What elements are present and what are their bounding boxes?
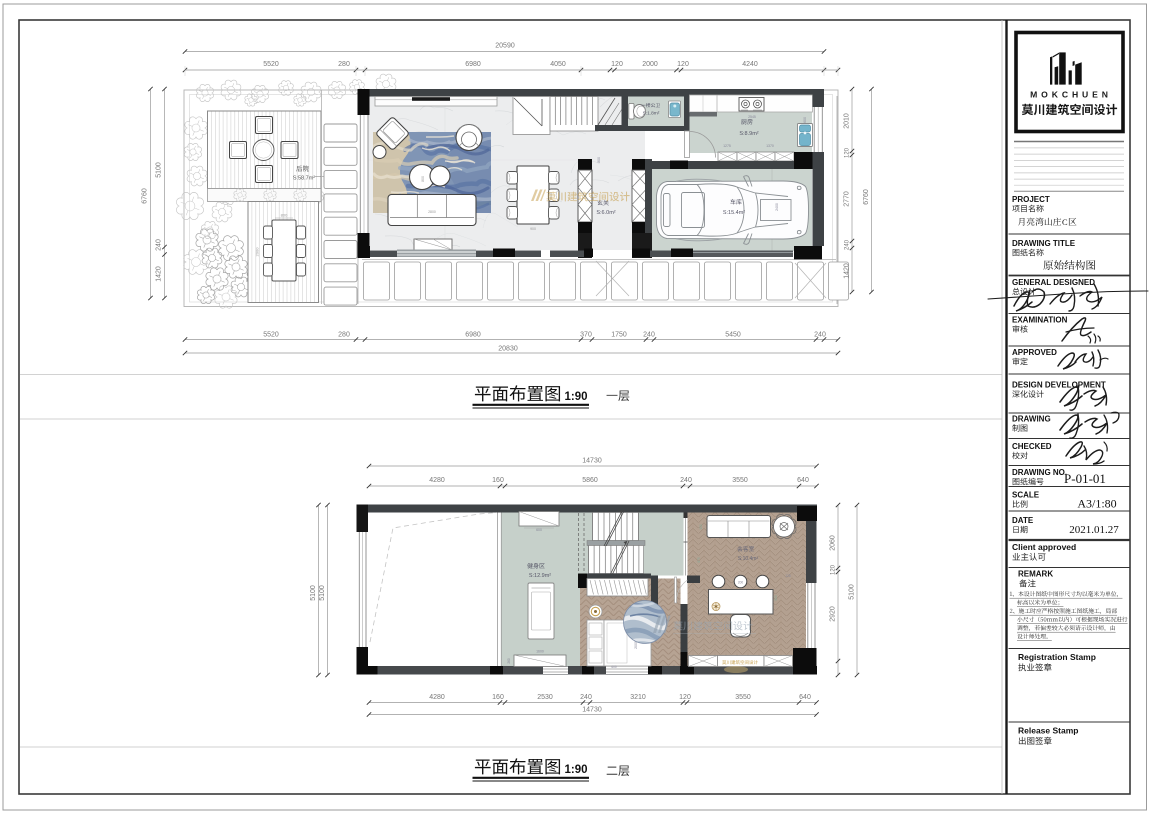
svg-text:P-01-01: P-01-01 — [1064, 471, 1106, 486]
svg-text:5100: 5100 — [156, 162, 163, 178]
svg-text:5520: 5520 — [263, 332, 279, 339]
svg-text:125: 125 — [785, 574, 791, 578]
svg-text:EXAMINATION: EXAMINATION — [1012, 316, 1068, 325]
svg-text:240: 240 — [814, 332, 826, 339]
svg-text:A3/1:80: A3/1:80 — [1077, 497, 1116, 511]
svg-text:DATE: DATE — [1012, 516, 1034, 525]
svg-text:800: 800 — [597, 157, 601, 163]
svg-text:1420: 1420 — [156, 266, 163, 282]
svg-text:REMARK: REMARK — [1018, 570, 1053, 579]
svg-text:4240: 4240 — [742, 61, 758, 68]
svg-text:800: 800 — [281, 213, 288, 218]
svg-text:240: 240 — [845, 239, 851, 250]
svg-text:6760: 6760 — [142, 188, 149, 204]
svg-text:240: 240 — [680, 477, 692, 484]
svg-text:S:15.4m²: S:15.4m² — [723, 210, 745, 216]
svg-text:20830: 20830 — [498, 346, 518, 353]
svg-text:DRAWING: DRAWING — [1012, 415, 1051, 424]
svg-text:DESIGN DEVELOPMENT: DESIGN DEVELOPMENT — [1012, 381, 1106, 390]
svg-text:160: 160 — [492, 477, 504, 484]
svg-text:6760: 6760 — [863, 189, 870, 205]
svg-text:2770: 2770 — [844, 191, 851, 207]
svg-text:2545: 2545 — [748, 115, 756, 119]
svg-text:2920: 2920 — [830, 606, 837, 622]
svg-text:2800: 2800 — [428, 210, 436, 214]
svg-text:1275: 1275 — [723, 144, 731, 148]
svg-text:875: 875 — [697, 557, 701, 563]
svg-text:120: 120 — [845, 147, 851, 158]
svg-text:2021.01.27: 2021.01.27 — [1069, 524, 1119, 536]
svg-text:5450: 5450 — [725, 332, 741, 339]
svg-text:280: 280 — [338, 61, 350, 68]
svg-text:640: 640 — [797, 477, 809, 484]
svg-text:MOKCHUEN: MOKCHUEN — [1030, 90, 1112, 100]
svg-text:2000: 2000 — [255, 247, 260, 257]
svg-text:Registration Stamp: Registration Stamp — [1018, 652, 1096, 662]
svg-text:200: 200 — [738, 581, 744, 585]
svg-text:S:58.7m²: S:58.7m² — [293, 176, 315, 182]
svg-text:S:12.9m²: S:12.9m² — [529, 573, 551, 579]
svg-text:5100: 5100 — [310, 585, 317, 601]
svg-text:120: 120 — [611, 61, 623, 68]
svg-text:DRAWING NO.: DRAWING NO. — [1012, 468, 1067, 477]
svg-text:14730: 14730 — [582, 707, 602, 714]
svg-text:S:6.0m²: S:6.0m² — [596, 210, 615, 216]
svg-text:240: 240 — [643, 332, 655, 339]
svg-text:900: 900 — [530, 227, 536, 231]
svg-text:1600: 1600 — [536, 650, 544, 654]
svg-text:20590: 20590 — [495, 43, 515, 50]
svg-text:260: 260 — [507, 658, 511, 664]
svg-text:Release Stamp: Release Stamp — [1018, 726, 1078, 736]
svg-text:14730: 14730 — [582, 458, 602, 465]
svg-text:S:8.9m²: S:8.9m² — [739, 131, 758, 137]
svg-text:640: 640 — [799, 694, 811, 701]
svg-text:1420: 1420 — [844, 263, 851, 279]
svg-text:1750: 1750 — [611, 332, 627, 339]
svg-text:3550: 3550 — [735, 694, 751, 701]
svg-text:5100: 5100 — [849, 584, 856, 600]
svg-text:120: 120 — [677, 61, 689, 68]
svg-text:800: 800 — [421, 176, 425, 182]
svg-text:Client approved: Client approved — [1012, 542, 1076, 552]
svg-text:600: 600 — [803, 117, 807, 123]
svg-text:600: 600 — [611, 665, 617, 669]
svg-text:S:10.4m²: S:10.4m² — [738, 556, 759, 562]
svg-text:C: C — [1062, 218, 1068, 227]
svg-text:S:1.8m²: S:1.8m² — [643, 111, 660, 117]
svg-text:1370: 1370 — [766, 144, 774, 148]
svg-text:280: 280 — [338, 332, 350, 339]
svg-text:2060: 2060 — [830, 535, 837, 551]
svg-text:120: 120 — [831, 564, 837, 575]
svg-text:5860: 5860 — [582, 477, 598, 484]
svg-text:SCALE: SCALE — [1012, 491, 1040, 500]
svg-text:DRAWING TITLE: DRAWING TITLE — [1012, 239, 1076, 248]
svg-text:4280: 4280 — [429, 477, 445, 484]
svg-text:1:90: 1:90 — [564, 764, 587, 776]
svg-text:3210: 3210 — [630, 694, 646, 701]
svg-text:240: 240 — [156, 239, 163, 251]
svg-text:6980: 6980 — [465, 332, 481, 339]
svg-text:800: 800 — [774, 595, 778, 601]
svg-text:2400: 2400 — [775, 203, 779, 211]
svg-text:2530: 2530 — [537, 694, 553, 701]
svg-text:4280: 4280 — [429, 694, 445, 701]
svg-text:600: 600 — [536, 528, 542, 532]
svg-text:1:90: 1:90 — [564, 391, 587, 403]
svg-text:2010: 2010 — [844, 113, 851, 129]
svg-text:GENERAL DESIGNED: GENERAL DESIGNED — [1012, 278, 1095, 287]
svg-text:3550: 3550 — [732, 477, 748, 484]
svg-text:PROJECT: PROJECT — [1012, 195, 1050, 204]
svg-text:5100: 5100 — [319, 585, 326, 601]
svg-text:CHECKED: CHECKED — [1012, 442, 1052, 451]
svg-text:120: 120 — [679, 694, 691, 701]
svg-text:370: 370 — [580, 332, 592, 339]
svg-text:160: 160 — [492, 694, 504, 701]
svg-text:150: 150 — [699, 524, 703, 530]
svg-text:2000: 2000 — [642, 61, 658, 68]
svg-text:6980: 6980 — [465, 61, 481, 68]
svg-text:5520: 5520 — [263, 61, 279, 68]
svg-text:240: 240 — [580, 694, 592, 701]
svg-text:4050: 4050 — [550, 61, 566, 68]
svg-text:APPROVED: APPROVED — [1012, 348, 1057, 357]
